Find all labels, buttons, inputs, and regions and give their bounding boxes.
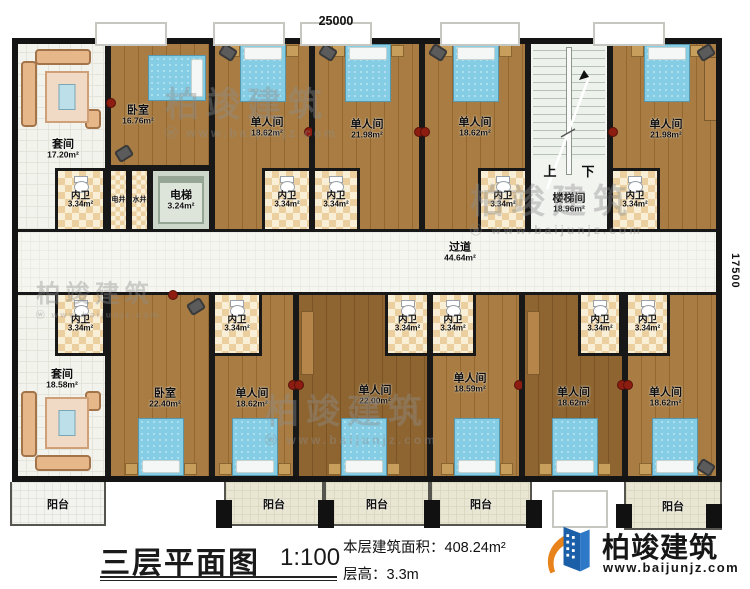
nightstand (278, 463, 291, 475)
room-shaft-water (129, 168, 150, 232)
nightstand (598, 463, 611, 475)
bed-pillow (191, 59, 203, 97)
nightstand (631, 45, 644, 57)
stair-up-label: 上 (543, 161, 556, 180)
toilet-icon (626, 176, 644, 193)
sofa-side (21, 391, 37, 457)
stair-direction-labels: 上下 (531, 161, 607, 180)
wall-lamp-dot (608, 127, 618, 137)
toilet-bowl (593, 305, 608, 317)
room-bath-u4 (478, 168, 528, 232)
toilet-bowl (74, 305, 89, 317)
rug (45, 71, 89, 123)
logo-building-icon (543, 520, 599, 587)
room-elevator (150, 168, 212, 232)
room-corridor (12, 232, 722, 292)
toilet-bowl (74, 181, 89, 193)
room-stairwell: 上下 (528, 38, 610, 232)
nightstand (391, 45, 404, 57)
area-value: 408.24m² (445, 540, 506, 556)
coffee-table (59, 84, 76, 110)
toilet-icon (72, 176, 90, 193)
toilet-icon (494, 176, 512, 193)
toilet-icon (72, 300, 90, 317)
area-label: 本层建筑面积： (343, 540, 445, 556)
bed (652, 418, 698, 476)
chair (186, 297, 206, 317)
bed-pillow (457, 47, 495, 60)
nightstand (125, 463, 138, 475)
nightstand (328, 463, 341, 475)
room-bath-l3 (385, 292, 430, 356)
dimension-top: 25000 (300, 14, 372, 28)
toilet-bowl (329, 181, 344, 193)
bed-pillow (345, 460, 383, 473)
room-bath-l5 (578, 292, 622, 356)
bed (138, 418, 184, 476)
toilet-icon (399, 300, 417, 317)
bed-pillow (656, 460, 694, 473)
desk (301, 311, 314, 375)
bed-pillow (142, 460, 180, 473)
top-window-2 (213, 22, 285, 46)
wall-lamp-dot (294, 380, 304, 390)
bed (345, 44, 391, 102)
bed-pillow (648, 47, 686, 60)
nightstand (286, 45, 299, 57)
toilet-icon (444, 300, 462, 317)
wall-lamp-dot (168, 290, 178, 300)
bed (644, 44, 690, 102)
nightstand (184, 463, 197, 475)
wall-lamp-dot (623, 380, 633, 390)
stair-arrow-icon (531, 41, 607, 229)
rug (45, 397, 89, 449)
bed-pillow (458, 460, 496, 473)
nightstand (219, 463, 232, 475)
nightstand (639, 463, 652, 475)
chair (114, 144, 134, 164)
room-bedroom-low (108, 292, 212, 482)
company-logo: 柏竣建筑 www.baijunjz.com (543, 520, 743, 586)
bed (453, 44, 499, 102)
nightstand (500, 463, 513, 475)
bed (552, 418, 598, 476)
toilet-bowl (401, 305, 416, 317)
bed-pillow (556, 460, 594, 473)
toilet-icon (278, 176, 296, 193)
title-underline (100, 576, 337, 578)
bed-pillow (236, 460, 274, 473)
sofa-set (21, 379, 101, 471)
nightstand (539, 463, 552, 475)
toilet-bowl (446, 305, 461, 317)
bed (232, 418, 278, 476)
room-bath-u3 (312, 168, 360, 232)
nightstand (499, 45, 512, 57)
nightstand (387, 463, 400, 475)
room-bath-l6 (625, 292, 670, 356)
bed-pillow (244, 47, 282, 60)
coffee-table (59, 410, 76, 436)
plan-scale: 1:100 (280, 544, 340, 572)
toilet-bowl (230, 305, 245, 317)
toilet-icon (228, 300, 246, 317)
sofa-back (35, 49, 91, 65)
floor-plan-stage: 25000 17500 三层平面图 1:100 本层建筑面积：408.24m² … (0, 0, 750, 589)
logo-url: www.baijunjz.com (603, 560, 739, 575)
room-bath-u2 (262, 168, 312, 232)
plan-stats: 本层建筑面积：408.24m² 层高：3.3m (343, 536, 506, 589)
room-bath-l4 (430, 292, 476, 356)
room-shaft-elec (108, 168, 129, 232)
top-window-5 (593, 22, 665, 46)
desk (527, 311, 540, 375)
floor-height-label: 层高： (343, 567, 387, 583)
top-window-1 (95, 22, 167, 46)
elevator-car (158, 176, 204, 224)
wall-lamp-dot (420, 127, 430, 137)
toilet-bowl (628, 181, 643, 193)
bed-pillow (349, 47, 387, 60)
toilet-bowl (280, 181, 295, 193)
toilet-bowl (641, 305, 656, 317)
toilet-icon (327, 176, 345, 193)
room-bath-l2 (212, 292, 262, 356)
dimension-right: 17500 (729, 253, 741, 289)
sofa-set (21, 49, 101, 141)
room-bath-l1 (55, 292, 106, 356)
room-bath-u5 (610, 168, 660, 232)
room-bedroom-up (108, 38, 212, 168)
toilet-icon (639, 300, 657, 317)
bed (148, 55, 206, 101)
room-bath-u1 (55, 168, 106, 232)
title-block: 三层平面图 1:100 本层建筑面积：408.24m² 层高：3.3m (0, 518, 750, 589)
toilet-icon (591, 300, 609, 317)
top-window-4 (440, 22, 520, 46)
nightstand (441, 463, 454, 475)
desk (704, 57, 717, 121)
floor-height-value: 3.3m (387, 567, 419, 583)
wall-lamp-dot (106, 98, 116, 108)
bed (240, 44, 286, 102)
stair-down-label: 下 (581, 161, 594, 180)
bed (341, 418, 387, 476)
bed (454, 418, 500, 476)
sofa-side (21, 61, 37, 127)
title-underline-2 (100, 580, 337, 581)
toilet-bowl (496, 181, 511, 193)
sofa-back (35, 455, 91, 471)
